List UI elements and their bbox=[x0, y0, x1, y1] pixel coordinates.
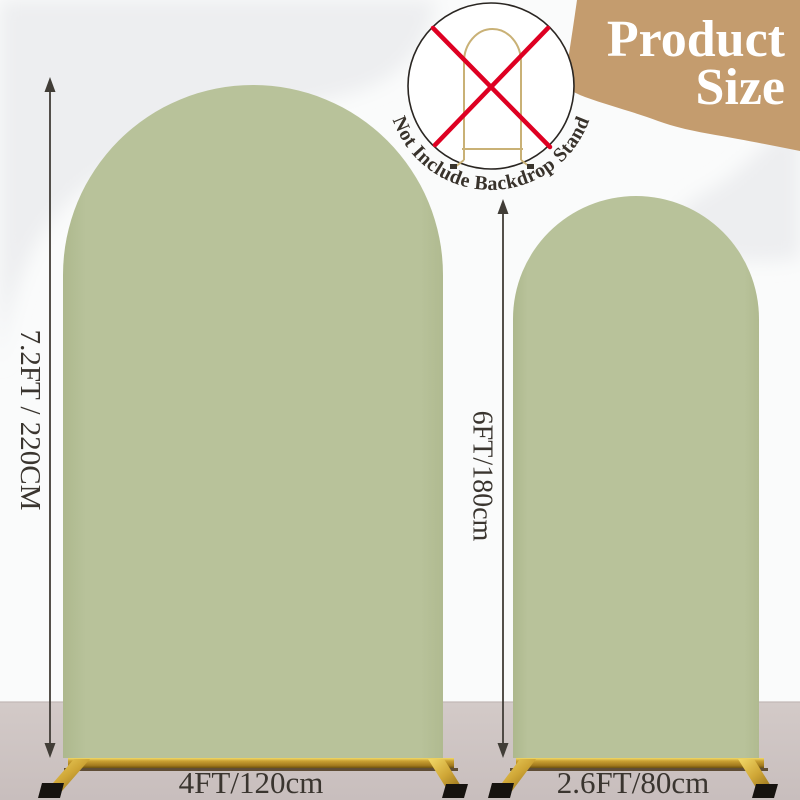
small-arch-cover bbox=[513, 196, 759, 758]
product-size-diagram: 7.2FT / 220CM 6FT/180cm 4FT/120cm 2.6FT/… bbox=[0, 0, 800, 800]
large-arch-height-label: 7.2FT / 220CM bbox=[14, 330, 46, 511]
title-line2: Size bbox=[695, 59, 785, 116]
large-arch-cover bbox=[63, 85, 443, 758]
large-arch-width-label: 4FT/120cm bbox=[179, 765, 324, 800]
small-arch-height-label: 6FT/180cm bbox=[467, 411, 498, 542]
small-arch-width-label: 2.6FT/80cm bbox=[557, 765, 709, 800]
product-size-graphic: 7.2FT / 220CM 6FT/180cm 4FT/120cm 2.6FT/… bbox=[0, 0, 800, 800]
